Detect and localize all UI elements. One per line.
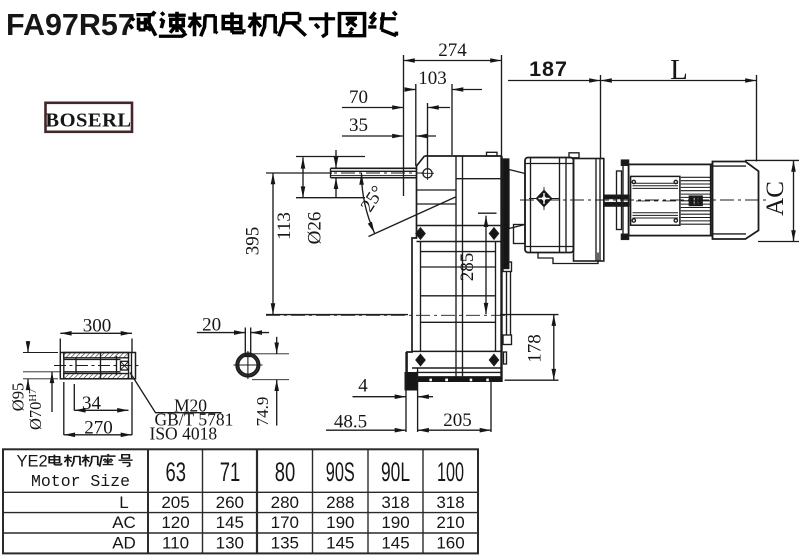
- svg-text:Ø95: Ø95: [9, 383, 28, 411]
- svg-text:120: 120: [161, 513, 189, 532]
- svg-text:130: 130: [216, 533, 244, 552]
- svg-text:135: 135: [271, 533, 299, 552]
- svg-text:YE2: YE2: [17, 453, 48, 471]
- svg-text:63: 63: [166, 457, 187, 487]
- svg-text:L: L: [119, 493, 128, 512]
- svg-text:90L: 90L: [381, 457, 410, 487]
- svg-text:270: 270: [84, 418, 113, 439]
- svg-text:L: L: [670, 54, 688, 86]
- svg-text:35: 35: [349, 115, 368, 136]
- svg-text:285: 285: [457, 253, 478, 282]
- svg-text:145: 145: [216, 513, 244, 532]
- svg-text:187: 187: [529, 57, 568, 81]
- svg-text:71: 71: [220, 457, 241, 487]
- svg-text:145: 145: [326, 533, 354, 552]
- svg-text:74.9: 74.9: [253, 397, 272, 427]
- svg-text:205: 205: [161, 493, 189, 512]
- svg-text:210: 210: [436, 513, 464, 532]
- svg-text:AD: AD: [112, 533, 136, 552]
- svg-text:34: 34: [82, 393, 102, 414]
- svg-text:110: 110: [162, 533, 189, 552]
- svg-text:395: 395: [243, 227, 264, 256]
- svg-text:190: 190: [326, 513, 354, 532]
- svg-text:Motor Size: Motor Size: [31, 472, 130, 491]
- svg-text:145: 145: [381, 533, 409, 552]
- svg-text:48.5: 48.5: [334, 412, 367, 433]
- svg-text:300: 300: [83, 316, 112, 337]
- svg-text:190: 190: [381, 513, 409, 532]
- svg-text:178: 178: [524, 334, 545, 363]
- svg-text:103: 103: [418, 68, 447, 89]
- svg-text:ISO 4018: ISO 4018: [150, 424, 218, 444]
- svg-text:205: 205: [443, 410, 472, 431]
- svg-text:70: 70: [349, 87, 368, 108]
- svg-text:Ø26: Ø26: [305, 212, 326, 245]
- svg-text:318: 318: [436, 493, 464, 512]
- svg-text:20: 20: [202, 315, 221, 336]
- svg-text:80: 80: [275, 457, 296, 487]
- svg-text:260: 260: [216, 493, 244, 512]
- svg-text:274: 274: [438, 40, 467, 61]
- svg-text:113: 113: [274, 212, 295, 240]
- svg-text:BOSERL: BOSERL: [45, 110, 131, 132]
- svg-text:100: 100: [437, 457, 464, 487]
- svg-text:288: 288: [326, 493, 354, 512]
- svg-text:280: 280: [271, 493, 299, 512]
- svg-text:AC: AC: [112, 513, 136, 532]
- svg-text:AC: AC: [762, 181, 789, 216]
- svg-text:160: 160: [436, 533, 464, 552]
- svg-text:FA97R57: FA97R57: [6, 8, 135, 42]
- svg-text:4: 4: [358, 376, 368, 397]
- svg-text:318: 318: [381, 493, 409, 512]
- svg-text:170: 170: [271, 513, 299, 532]
- svg-text:90S: 90S: [326, 457, 355, 487]
